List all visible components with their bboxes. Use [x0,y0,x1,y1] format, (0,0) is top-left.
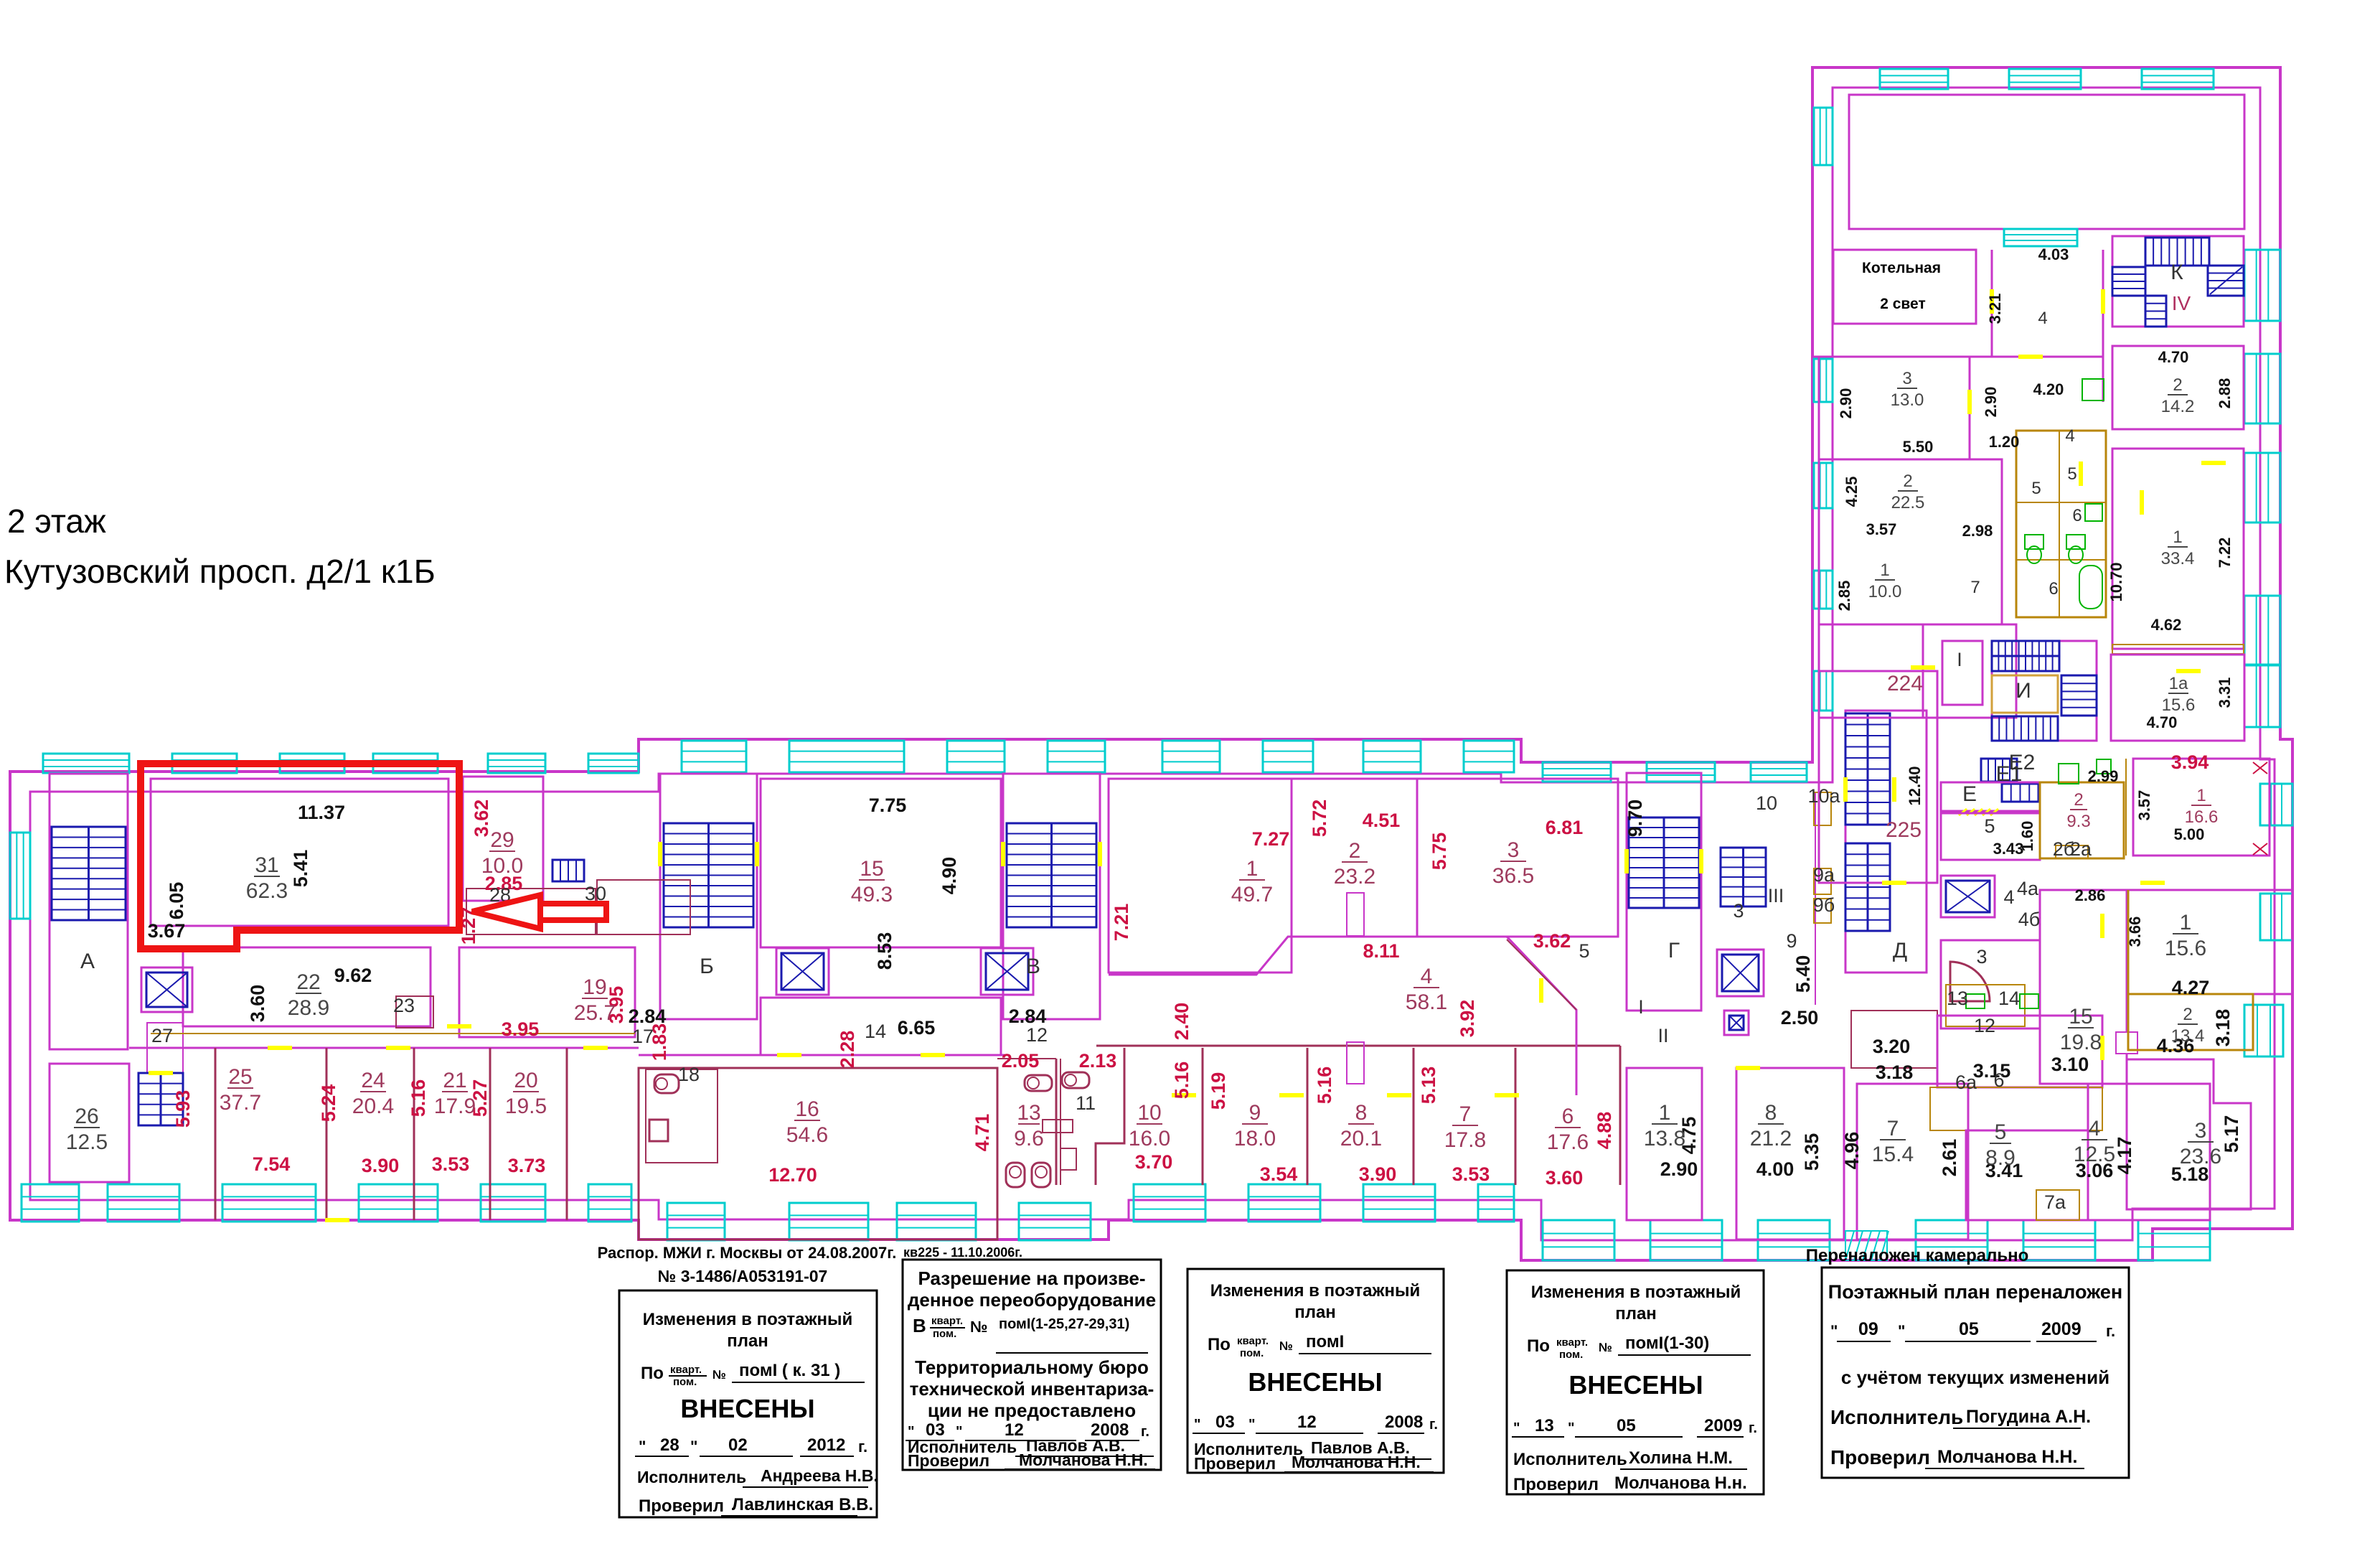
svg-text:7.54: 7.54 [253,1153,291,1175]
svg-text:9.62: 9.62 [334,965,372,986]
svg-text:4.90: 4.90 [939,857,960,895]
svg-text:6: 6 [2049,579,2058,599]
svg-text:Изменения в поэтажный: Изменения в поэтажный [643,1310,853,1329]
svg-text:36.5: 36.5 [1492,864,1534,888]
svg-text:12.40: 12.40 [1906,766,1924,805]
svg-text:5.72: 5.72 [1309,800,1330,838]
svg-text:8: 8 [1355,1101,1368,1125]
svg-text:2.50: 2.50 [1781,1007,1819,1028]
svg-text:Лавлинская В.В.: Лавлинская В.В. [732,1495,873,1514]
svg-text:23: 23 [393,995,415,1016]
svg-text:11: 11 [1076,1092,1096,1114]
svg-text:1а: 1а [2169,674,2188,693]
svg-text:1.20: 1.20 [1989,433,2020,451]
svg-text:IV: IV [2172,292,2191,314]
svg-text:Молчанова Н.Н.: Молчанова Н.Н. [1292,1453,1421,1471]
svg-text:III: III [1768,885,1784,906]
svg-text:4.96: 4.96 [1841,1132,1863,1170]
svg-text:5.17: 5.17 [2221,1115,2242,1153]
svg-text:технической инвентариза-: технической инвентариза- [910,1378,1154,1400]
svg-text:27: 27 [151,1025,173,1046]
svg-text:": " [1194,1417,1200,1433]
svg-text:15: 15 [860,857,883,881]
svg-text:г.: г. [1141,1424,1149,1440]
svg-text:2.05: 2.05 [1002,1050,1040,1072]
svg-text:Андреева Н.В.: Андреева Н.В. [761,1466,878,1485]
svg-text:2.88: 2.88 [2216,378,2234,409]
svg-text:2: 2 [2074,790,2083,810]
svg-text:г.: г. [1749,1420,1757,1436]
svg-text:Изменения в поэтажный: Изменения в поэтажный [1210,1281,1421,1301]
svg-text:Б: Б [700,955,714,978]
svg-text:Погудина А.Н.: Погудина А.Н. [1966,1407,2091,1427]
svg-text:г.: г. [858,1438,867,1456]
svg-text:г.: г. [2106,1322,2115,1340]
svg-text:9.3: 9.3 [2066,812,2090,831]
svg-text:3.10: 3.10 [2051,1054,2089,1075]
svg-text:20: 20 [514,1069,537,1092]
svg-text:3.66: 3.66 [2126,917,2144,947]
svg-text:4: 4 [1421,965,1433,988]
svg-text:62.3: 62.3 [246,879,288,903]
svg-text:3.62: 3.62 [471,800,492,838]
svg-text:2: 2 [1349,839,1361,863]
svg-text:4: 4 [2089,1117,2101,1140]
svg-text:17.6: 17.6 [1547,1130,1589,1154]
svg-text:19.5: 19.5 [505,1095,547,1118]
svg-text:2 этаж: 2 этаж [7,502,106,540]
svg-text:5: 5 [1995,1120,2007,1144]
svg-text:2008: 2008 [1385,1412,1423,1432]
svg-text:2: 2 [1903,472,1912,491]
svg-text:ВНЕСЕНЫ: ВНЕСЕНЫ [1248,1367,1382,1397]
svg-text:3.31: 3.31 [2216,678,2234,708]
svg-text:12.5: 12.5 [2074,1143,2115,1166]
svg-text:14.2: 14.2 [2161,397,2195,416]
svg-text:3.94: 3.94 [2171,751,2209,773]
svg-text:6.05: 6.05 [166,882,187,920]
svg-text:5: 5 [2031,479,2041,498]
svg-text:2.90: 2.90 [1837,388,1855,419]
svg-text:Проверил: Проверил [1513,1475,1599,1494]
svg-text:3.60: 3.60 [1546,1167,1584,1189]
svg-text:2.85: 2.85 [1835,581,1853,612]
svg-text:кв225 - 11.10.2006г.: кв225 - 11.10.2006г. [903,1245,1022,1260]
svg-text:9а: 9а [1813,864,1835,886]
svg-text:Холина Н.М.: Холина Н.М. [1629,1448,1733,1468]
svg-text:пом.: пом. [673,1376,697,1388]
svg-text:9б: 9б [1813,894,1835,916]
svg-text:03: 03 [926,1420,945,1440]
svg-text:9.6: 9.6 [1014,1127,1044,1151]
svg-text:7.75: 7.75 [869,795,907,816]
svg-text:2.86: 2.86 [2075,886,2106,904]
svg-text:По: По [1527,1336,1550,1356]
svg-text:3.90: 3.90 [1359,1163,1397,1185]
svg-text:3.21: 3.21 [1986,294,2004,324]
svg-text:12: 12 [1974,1015,1995,1036]
svg-text:02: 02 [728,1435,748,1455]
svg-text:4.70: 4.70 [2147,713,2178,731]
svg-text:№: № [1599,1341,1612,1354]
svg-text:2.98: 2.98 [1962,522,1993,540]
svg-text:ции не предоставлено: ции не предоставлено [928,1400,1136,1421]
svg-text:6: 6 [1562,1105,1574,1128]
svg-text:3.15: 3.15 [1973,1060,2011,1082]
svg-text:II: II [1657,1025,1668,1046]
svg-text:7.22: 7.22 [2216,538,2234,568]
svg-text:15.6: 15.6 [2165,937,2206,960]
svg-text:г.: г. [1429,1417,1438,1433]
svg-text:Поэтажный план переналожен: Поэтажный план переналожен [1828,1281,2122,1303]
svg-text:8.9: 8.9 [1985,1146,2016,1170]
svg-text:6.65: 6.65 [898,1017,936,1039]
svg-text:": " [1830,1322,1838,1340]
svg-text:49.3: 49.3 [851,883,893,906]
svg-text:29: 29 [490,828,514,852]
svg-text:3.73: 3.73 [508,1155,546,1176]
svg-text:6.81: 6.81 [1546,817,1584,838]
svg-text:13: 13 [1017,1101,1040,1125]
svg-text:19.8: 19.8 [2060,1031,2102,1054]
svg-text:09: 09 [1858,1319,1878,1339]
svg-text:кварт.: кварт. [931,1315,963,1327]
svg-text:№ 3-1486/А053191-07: № 3-1486/А053191-07 [658,1267,828,1285]
svg-text:Кутузовский просп. д2/1 к1Б: Кутузовский просп. д2/1 к1Б [4,553,436,590]
svg-text:16.0: 16.0 [1129,1127,1170,1151]
svg-text:план: план [727,1331,768,1351]
svg-text:3.20: 3.20 [1873,1036,1911,1057]
svg-text:Д: Д [1893,939,1907,962]
svg-text:5.00: 5.00 [2174,825,2205,843]
svg-text:10.70: 10.70 [2107,562,2125,601]
svg-text:К: К [2170,261,2183,284]
svg-text:3.54: 3.54 [1260,1163,1298,1185]
svg-text:2009: 2009 [2041,1319,2082,1339]
svg-text:2.28: 2.28 [837,1031,858,1069]
svg-text:пом.: пом. [1240,1347,1264,1359]
svg-text:5.16: 5.16 [408,1079,429,1117]
svg-text:2.40: 2.40 [1171,1003,1193,1041]
svg-text:3: 3 [1508,838,1520,862]
svg-text:3.92: 3.92 [1457,1000,1478,1038]
svg-text:13.4: 13.4 [2171,1026,2205,1046]
svg-text:3.53: 3.53 [432,1153,470,1175]
svg-text:пом.: пом. [1559,1349,1583,1361]
svg-text:21.2: 21.2 [1750,1127,1792,1151]
svg-text:8.11: 8.11 [1363,940,1399,962]
svg-text:17.8: 17.8 [1444,1128,1486,1152]
svg-text:5: 5 [1579,940,1589,962]
svg-text:денное переоборудование: денное переоборудование [908,1289,1156,1311]
svg-text:10: 10 [1756,792,1777,814]
svg-text:14: 14 [865,1021,886,1042]
svg-text:6: 6 [2072,506,2082,525]
svg-text:№: № [1279,1339,1293,1353]
svg-text:2.13: 2.13 [1079,1050,1117,1072]
svg-text:7.21: 7.21 [1111,904,1132,942]
svg-text:2009: 2009 [1704,1416,1742,1435]
svg-text:7: 7 [1970,578,1980,597]
svg-text:13.8: 13.8 [1644,1127,1685,1151]
svg-text:1: 1 [1659,1101,1671,1125]
svg-text:2: 2 [2173,375,2182,395]
svg-text:А: А [80,950,95,973]
svg-text:17.9: 17.9 [434,1095,476,1118]
svg-text:7: 7 [1459,1102,1472,1126]
svg-text:3.18: 3.18 [2212,1009,2234,1047]
svg-text:9: 9 [1786,930,1797,952]
svg-text:": " [1898,1322,1905,1340]
svg-text:6: 6 [1993,1069,2004,1091]
svg-text:28.9: 28.9 [288,996,329,1020]
svg-text:№: № [712,1368,726,1382]
svg-text:4.20: 4.20 [2033,380,2064,398]
svg-text:помI(1-25,27-29,31): помI(1-25,27-29,31) [999,1316,1129,1332]
svg-text:4а: 4а [2017,878,2039,899]
svg-text:12: 12 [1026,1024,1048,1046]
svg-text:3.95: 3.95 [502,1018,540,1040]
svg-text:кварт.: кварт. [1237,1335,1269,1347]
svg-text:Г: Г [1668,939,1680,962]
svg-text:Е1: Е1 [1996,762,2023,786]
svg-text:31: 31 [255,853,278,877]
svg-text:4.88: 4.88 [1594,1112,1615,1150]
svg-text:3: 3 [1733,900,1744,922]
svg-text:2.90: 2.90 [1982,387,2000,418]
svg-text:4: 4 [2003,886,2014,908]
svg-text:15: 15 [2069,1005,2092,1028]
svg-text:3.18: 3.18 [1876,1062,1914,1083]
svg-text:12.5: 12.5 [66,1130,108,1154]
svg-text:4: 4 [2065,426,2074,446]
svg-text:7.27: 7.27 [1252,828,1290,850]
svg-text:14: 14 [1998,988,2020,1009]
svg-text:4.27: 4.27 [2172,977,2210,998]
svg-text:8: 8 [1765,1101,1777,1125]
svg-text:5.50: 5.50 [1903,438,1934,456]
svg-text:2.99: 2.99 [2088,767,2119,785]
svg-text:5.19: 5.19 [1208,1072,1229,1110]
svg-text:3: 3 [2195,1119,2207,1143]
svg-text:1: 1 [2196,786,2206,805]
svg-text:": " [1248,1417,1255,1433]
svg-text:54.6: 54.6 [786,1123,828,1147]
svg-text:5: 5 [2067,464,2076,484]
svg-text:22: 22 [296,970,320,994]
svg-text:Молчанова Н.н.: Молчанова Н.н. [1614,1473,1747,1493]
svg-text:16.6: 16.6 [2185,807,2219,827]
svg-text:Проверил: Проверил [1830,1446,1930,1468]
svg-text:": " [690,1438,697,1456]
svg-text:9: 9 [1249,1101,1261,1125]
svg-text:1: 1 [2180,911,2192,934]
svg-text:10а: 10а [1807,785,1840,807]
svg-text:": " [639,1438,646,1456]
svg-text:4.00: 4.00 [1756,1158,1795,1180]
svg-text:Распор. МЖИ г. Москвы от 24.08: Распор. МЖИ г. Москвы от 24.08.2007г. [598,1244,897,1262]
svg-text:58.1: 58.1 [1406,990,1447,1014]
svg-text:10.0: 10.0 [1868,582,1902,601]
svg-text:13.0: 13.0 [1891,390,1924,410]
svg-text:5.16: 5.16 [1314,1067,1335,1105]
svg-text:25.7: 25.7 [574,1001,616,1025]
svg-text:И: И [2016,679,2031,703]
svg-text:план: план [1294,1303,1336,1322]
svg-text:5.24: 5.24 [318,1084,339,1123]
svg-text:кварт.: кварт. [670,1364,702,1376]
svg-text:": " [1568,1420,1574,1436]
svg-text:15.6: 15.6 [2162,695,2196,715]
svg-text:I: I [1638,996,1644,1018]
svg-text:4.25: 4.25 [1843,477,1861,507]
svg-text:3.60: 3.60 [247,985,268,1023]
svg-text:3.67: 3.67 [148,920,186,942]
svg-text:25: 25 [228,1065,252,1089]
svg-text:4б: 4б [2018,909,2040,930]
svg-text:17: 17 [632,1026,654,1047]
svg-text:11.37: 11.37 [298,802,345,823]
svg-text:7а: 7а [2044,1191,2066,1213]
svg-text:10.0: 10.0 [481,854,523,878]
svg-text:28: 28 [660,1435,679,1455]
svg-text:помI: помI [1306,1332,1344,1351]
svg-text:7: 7 [1887,1117,1899,1140]
svg-text:15.4: 15.4 [1872,1143,1914,1166]
svg-text:3.57: 3.57 [1866,520,1897,538]
svg-text:с учётом текущих изменений: с учётом текущих изменений [1841,1367,2109,1388]
svg-text:2 свет: 2 свет [1880,296,1926,312]
svg-text:225: 225 [1886,818,1922,842]
svg-text:10: 10 [1137,1101,1161,1125]
svg-text:Разрешение на произве-: Разрешение на произве- [918,1267,1145,1289]
svg-text:4.62: 4.62 [2151,616,2182,634]
svg-text:24: 24 [361,1069,385,1092]
svg-text:Молчанова Н.Н.: Молчанова Н.Н. [1019,1451,1148,1469]
svg-text:3.62: 3.62 [1533,930,1571,952]
svg-text:план: план [1615,1304,1657,1323]
svg-text:пом.: пом. [933,1328,956,1340]
svg-text:В: В [1026,955,1040,978]
svg-text:Территориальному бюро: Территориальному бюро [915,1356,1149,1378]
svg-text:18.0: 18.0 [1234,1127,1276,1151]
svg-text:23.2: 23.2 [1334,865,1375,889]
svg-text:9.70: 9.70 [1624,800,1646,838]
svg-text:5: 5 [1984,815,1995,837]
svg-text:2а: 2а [2070,838,2092,860]
svg-text:Исполнитель: Исполнитель [1830,1406,1963,1428]
svg-text:4.70: 4.70 [2158,348,2189,366]
svg-text:12.70: 12.70 [768,1164,817,1186]
svg-text:3.57: 3.57 [2135,790,2153,821]
svg-text:1: 1 [1880,561,1889,580]
svg-text:помI ( к. 31 ): помI ( к. 31 ) [739,1361,840,1380]
svg-text:Исполнитель: Исполнитель [637,1468,746,1486]
svg-text:1: 1 [1246,857,1259,881]
svg-text:224: 224 [1887,672,1923,695]
svg-text:20.1: 20.1 [1340,1127,1382,1151]
svg-text:49.7: 49.7 [1231,883,1273,906]
svg-text:Проверил: Проверил [639,1496,724,1516]
svg-text:12: 12 [1005,1420,1024,1440]
svg-text:2: 2 [2183,1005,2192,1024]
svg-text:2.61: 2.61 [1939,1139,1960,1177]
svg-text:1.60: 1.60 [2018,821,2036,852]
svg-text:4.17: 4.17 [2114,1137,2135,1175]
svg-text:8.53: 8.53 [874,932,895,970]
svg-text:4.71: 4.71 [972,1114,993,1152]
svg-text:По: По [641,1364,664,1383]
svg-text:12: 12 [1297,1412,1317,1432]
svg-text:Исполнитель: Исполнитель [1513,1450,1627,1469]
svg-text:18: 18 [678,1064,700,1085]
svg-text:5.35: 5.35 [1801,1133,1822,1171]
svg-text:3.70: 3.70 [1135,1151,1173,1173]
svg-text:6а: 6а [1955,1072,1977,1093]
svg-text:ВНЕСЕНЫ: ВНЕСЕНЫ [1568,1370,1703,1400]
svg-text:ВНЕСЕНЫ: ВНЕСЕНЫ [680,1394,814,1423]
svg-text:5.41: 5.41 [290,850,311,888]
svg-text:5.13: 5.13 [1418,1067,1439,1105]
svg-text:В: В [913,1315,926,1336]
svg-text:2012: 2012 [807,1435,845,1455]
svg-text:3: 3 [1902,369,1911,388]
svg-text:37.7: 37.7 [220,1091,261,1115]
svg-text:Проверил: Проверил [1194,1454,1276,1473]
svg-text:3: 3 [1976,946,1987,967]
svg-text:05: 05 [1617,1416,1636,1435]
svg-text:Изменения в поэтажный: Изменения в поэтажный [1531,1283,1741,1302]
svg-text:26: 26 [75,1105,98,1128]
svg-text:№: № [970,1318,988,1336]
svg-text:Е: Е [1962,782,1977,806]
svg-text:4.03: 4.03 [2038,245,2069,263]
svg-text:5.40: 5.40 [1792,955,1814,993]
svg-text:5.75: 5.75 [1429,833,1450,871]
svg-text:Молчанова Н.Н.: Молчанова Н.Н. [1937,1447,2077,1467]
svg-text:13: 13 [1947,988,1968,1009]
svg-text:19: 19 [583,975,606,999]
svg-text:5.16: 5.16 [1171,1062,1193,1100]
svg-text:1: 1 [2173,528,2182,547]
svg-text:13: 13 [1535,1416,1554,1435]
svg-text:3.90: 3.90 [362,1155,400,1176]
svg-text:21: 21 [443,1069,466,1092]
svg-text:Переналожен камерально: Переналожен камерально [1806,1246,2029,1265]
svg-text:помI(1-30): помI(1-30) [1625,1334,1709,1353]
svg-text:33.4: 33.4 [2161,549,2195,568]
svg-text:03: 03 [1215,1412,1235,1432]
svg-text:22.5: 22.5 [1891,493,1925,512]
svg-text:05: 05 [1959,1319,1979,1339]
svg-text:23.6: 23.6 [2180,1145,2221,1168]
svg-text:кварт.: кварт. [1556,1336,1588,1349]
svg-text:I: I [1957,649,1962,670]
svg-text:Котельная: Котельная [1862,260,1941,276]
svg-text:5.93: 5.93 [172,1090,194,1128]
svg-text:По: По [1208,1335,1231,1354]
svg-text:4: 4 [2038,309,2047,328]
svg-text:16: 16 [795,1097,819,1121]
svg-text:3.53: 3.53 [1452,1163,1490,1185]
svg-text:4.51: 4.51 [1363,810,1401,831]
svg-text:Проверил: Проверил [908,1451,989,1470]
svg-text:": " [1513,1420,1520,1436]
svg-text:2.90: 2.90 [1660,1158,1698,1180]
svg-text:20.4: 20.4 [352,1095,394,1118]
